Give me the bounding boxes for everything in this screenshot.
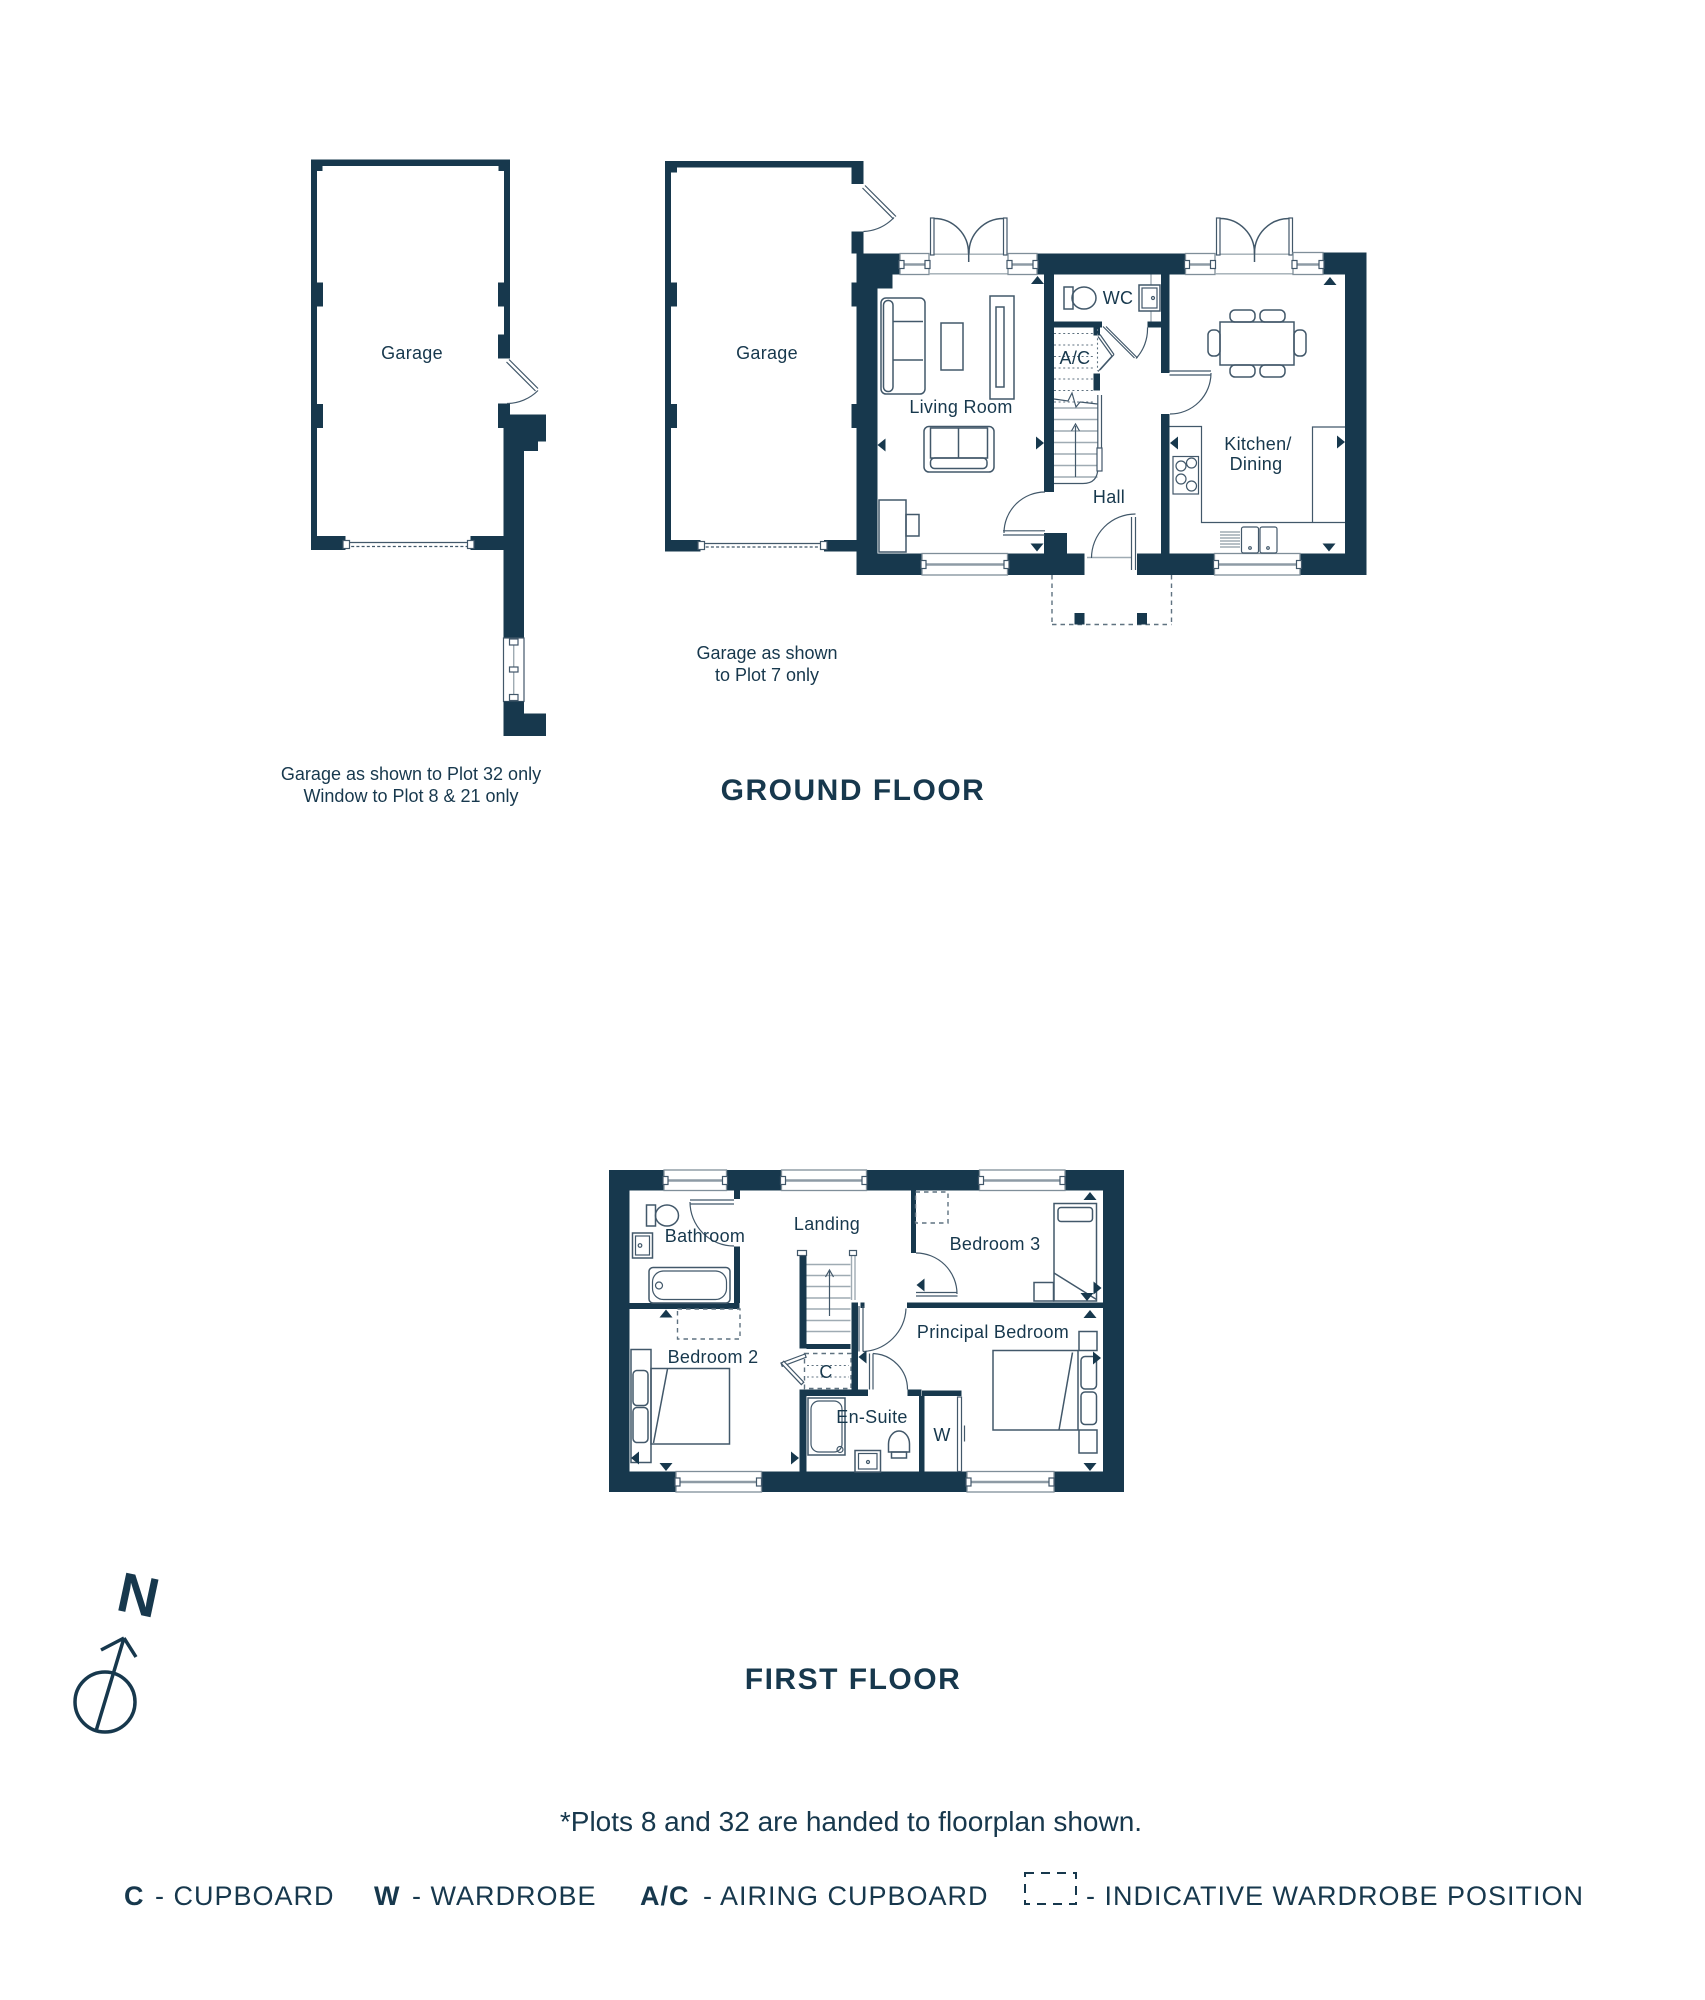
svg-text:Principal Bedroom: Principal Bedroom	[917, 1322, 1069, 1342]
svg-text:GROUND FLOOR: GROUND FLOOR	[721, 774, 986, 807]
svg-text:En-Suite: En-Suite	[836, 1407, 907, 1427]
svg-text:C: C	[124, 1881, 145, 1911]
svg-text:Garage: Garage	[381, 343, 443, 363]
svg-text:Dining: Dining	[1230, 454, 1283, 474]
svg-text:- CUPBOARD: - CUPBOARD	[155, 1881, 335, 1911]
svg-text:Garage: Garage	[736, 343, 798, 363]
svg-text:Bathroom: Bathroom	[665, 1226, 745, 1246]
svg-text:Window to Plot 8 & 21 only: Window to Plot 8 & 21 only	[303, 786, 518, 806]
svg-text:WC: WC	[1103, 288, 1134, 308]
svg-text:Bedroom 3: Bedroom 3	[950, 1234, 1041, 1254]
svg-text:FIRST FLOOR: FIRST FLOOR	[745, 1663, 961, 1696]
svg-text:- AIRING CUPBOARD: - AIRING CUPBOARD	[703, 1881, 989, 1911]
svg-text:A/C: A/C	[1060, 348, 1091, 368]
svg-text:Living Room: Living Room	[909, 397, 1012, 417]
svg-text:Hall: Hall	[1093, 487, 1125, 507]
svg-text:Garage as shown: Garage as shown	[696, 643, 837, 663]
svg-text:- INDICATIVE WARDROBE POSITION: - INDICATIVE WARDROBE POSITION	[1086, 1881, 1584, 1911]
svg-text:Kitchen/: Kitchen/	[1224, 434, 1291, 454]
svg-text:Landing: Landing	[794, 1214, 860, 1234]
svg-text:*Plots 8 and 32 are handed to: *Plots 8 and 32 are handed to floorplan …	[560, 1806, 1142, 1837]
svg-text:to Plot 7 only: to Plot 7 only	[715, 665, 819, 685]
svg-text:Bedroom 2: Bedroom 2	[668, 1347, 759, 1367]
svg-text:W: W	[374, 1881, 400, 1911]
svg-text:C: C	[819, 1362, 832, 1382]
svg-text:Garage as shown to Plot 32 onl: Garage as shown to Plot 32 only	[281, 764, 541, 784]
svg-text:A/C: A/C	[640, 1881, 690, 1911]
svg-text:W: W	[933, 1425, 950, 1445]
svg-text:- WARDROBE: - WARDROBE	[412, 1881, 597, 1911]
